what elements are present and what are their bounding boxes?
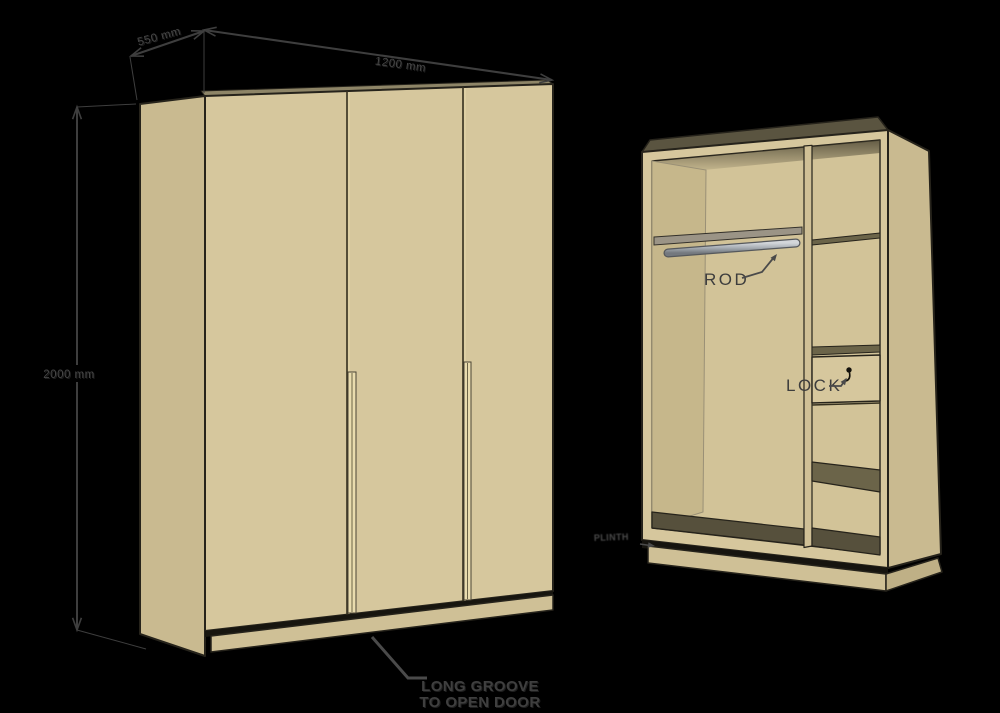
interior-left-wall	[652, 161, 706, 528]
closed-wardrobe	[140, 80, 553, 656]
door-groove-2	[464, 362, 471, 600]
groove-callout: LONG GROOVE TO OPEN DOOR	[372, 637, 541, 711]
wardrobe-diagram: 2000 mm 1200 mm 550 mm LONG GROOVE TO OP…	[0, 0, 1000, 713]
rod-label: ROD	[704, 270, 749, 289]
wardrobe-side-panel	[140, 96, 205, 656]
height-dimension: 2000 mm	[43, 104, 146, 649]
height-dimension-label: 2000 mm	[43, 369, 94, 381]
wardrobe-front-doors	[205, 84, 553, 631]
door-groove-1	[348, 372, 356, 613]
groove-leader	[372, 637, 427, 678]
plinth-label: PLINTH	[594, 532, 629, 543]
depth-dimension: 550 mm	[130, 26, 204, 100]
diagram-canvas: 2000 mm 1200 mm 550 mm LONG GROOVE TO OP…	[0, 0, 1000, 713]
depth-dimension-label: 550 mm	[136, 26, 182, 49]
center-divider	[804, 145, 812, 547]
lock-callout: LOCK	[786, 376, 847, 395]
open-wardrobe-side-panel	[888, 130, 941, 568]
groove-callout-line2: TO OPEN DOOR	[419, 694, 540, 711]
groove-callout-line1: LONG GROOVE	[421, 678, 539, 695]
width-dimension-label: 1200 mm	[374, 55, 427, 74]
open-wardrobe	[642, 117, 942, 591]
